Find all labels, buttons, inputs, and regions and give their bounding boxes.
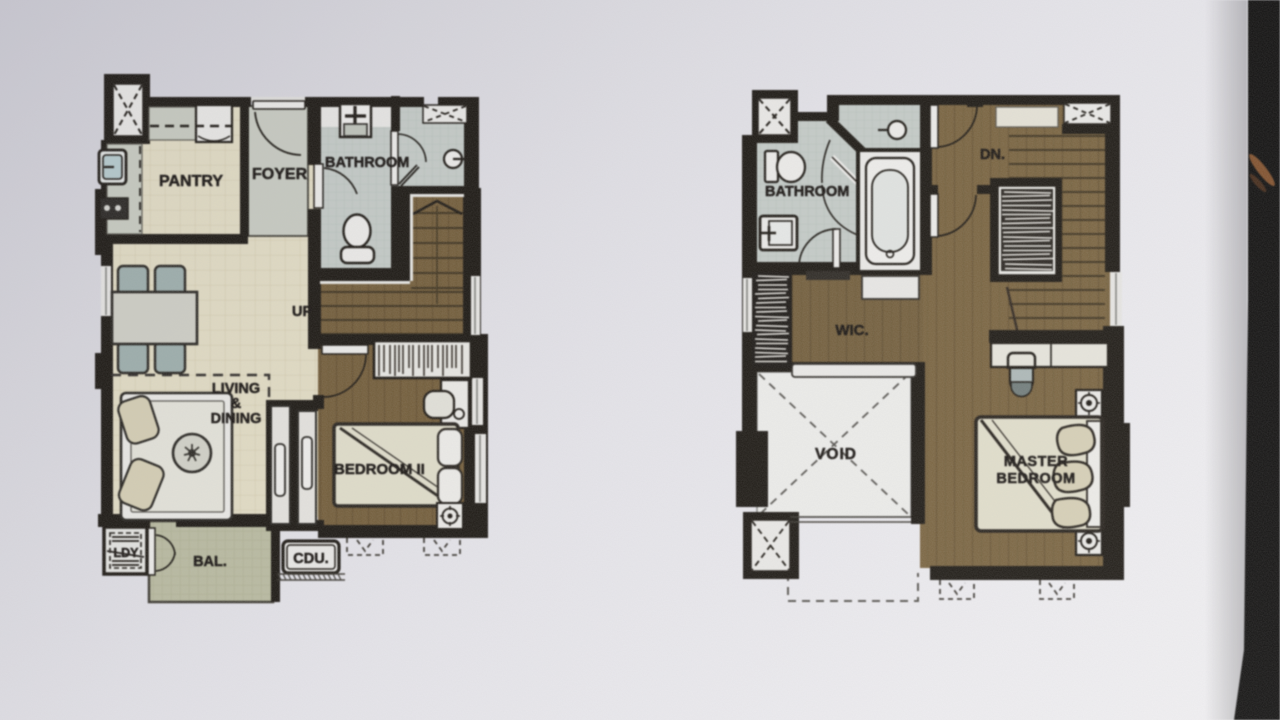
svg-text:BATHROOM: BATHROOM	[765, 184, 849, 200]
svg-text:PANTRY: PANTRY	[159, 173, 223, 190]
svg-text:BATHROOM: BATHROOM	[325, 155, 409, 171]
svg-text:DN.: DN.	[980, 147, 1005, 163]
svg-text:DINING: DINING	[211, 411, 262, 427]
svg-text:MASTER: MASTER	[1004, 454, 1068, 470]
svg-text:WIC.: WIC.	[835, 322, 868, 339]
svg-text:UP: UP	[292, 304, 312, 320]
svg-text:VOID: VOID	[815, 446, 857, 463]
svg-text:LIVING: LIVING	[212, 381, 260, 397]
svg-text:BEDROOM II: BEDROOM II	[334, 461, 425, 478]
svg-text:CDU.: CDU.	[293, 551, 328, 567]
svg-text:&: &	[231, 396, 242, 412]
svg-text:FOYER: FOYER	[252, 166, 308, 183]
svg-text:BAL.: BAL.	[193, 554, 227, 570]
svg-text:BEDROOM: BEDROOM	[996, 471, 1075, 487]
